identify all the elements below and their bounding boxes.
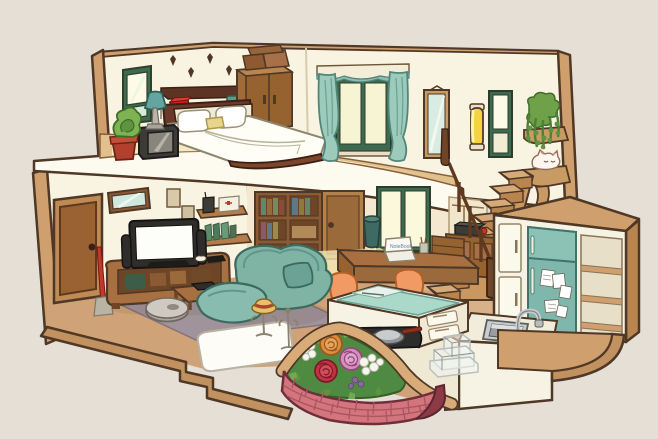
svg-text:NoteBook: NoteBook [390, 244, 412, 250]
